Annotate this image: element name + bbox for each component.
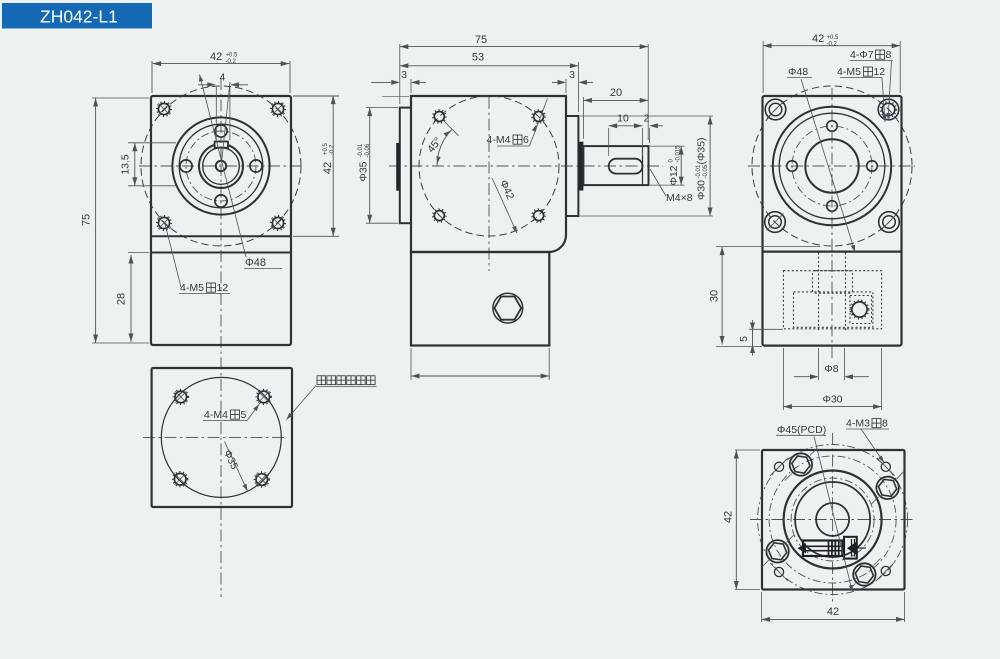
svg-text:Φ45(PCD): Φ45(PCD) xyxy=(777,424,826,436)
svg-text:8: 8 xyxy=(886,49,892,61)
svg-text:4-M4: 4-M4 xyxy=(487,134,511,146)
svg-text:42: 42 xyxy=(322,162,334,174)
svg-text:53: 53 xyxy=(472,52,484,64)
svg-text:42: 42 xyxy=(812,33,824,45)
svg-text:75: 75 xyxy=(475,34,487,46)
svg-text:Φ35: Φ35 xyxy=(358,161,370,181)
svg-text:-0.2: -0.2 xyxy=(226,59,237,65)
svg-text:4-M3: 4-M3 xyxy=(846,418,870,430)
svg-text:-0.01: -0.01 xyxy=(358,143,364,157)
svg-text:30: 30 xyxy=(709,290,721,302)
svg-text:2: 2 xyxy=(644,113,650,125)
svg-text:-0.06: -0.06 xyxy=(365,143,371,157)
svg-text:-0.2: -0.2 xyxy=(827,42,838,48)
svg-text:75: 75 xyxy=(81,214,93,226)
svg-text:Φ12: Φ12 xyxy=(668,165,680,185)
svg-text:Φ30: Φ30 xyxy=(696,180,708,200)
svg-text:3: 3 xyxy=(569,69,575,81)
svg-text:42: 42 xyxy=(210,51,222,63)
svg-text:Φ48: Φ48 xyxy=(245,257,266,269)
svg-text:4-M5: 4-M5 xyxy=(180,282,204,294)
svg-text:5: 5 xyxy=(738,336,750,342)
svg-text:Φ8: Φ8 xyxy=(824,363,838,375)
svg-text:13.5: 13.5 xyxy=(120,154,132,175)
svg-text:28: 28 xyxy=(116,293,128,305)
svg-text:Φ48: Φ48 xyxy=(788,66,808,78)
svg-text:12: 12 xyxy=(217,282,229,294)
svg-text:+0.5: +0.5 xyxy=(226,53,239,59)
svg-text:4-M5: 4-M5 xyxy=(837,66,861,78)
svg-text:4-M4: 4-M4 xyxy=(204,409,228,421)
svg-text:42: 42 xyxy=(827,606,839,618)
svg-text:6: 6 xyxy=(523,134,529,146)
svg-text:-0.05: -0.05 xyxy=(703,164,709,178)
svg-text:M4×8: M4×8 xyxy=(666,192,693,204)
svg-text:4: 4 xyxy=(220,72,226,84)
svg-text:5: 5 xyxy=(241,409,247,421)
svg-text:4-Φ7: 4-Φ7 xyxy=(850,49,874,61)
svg-text:12: 12 xyxy=(874,66,886,78)
svg-text:42: 42 xyxy=(723,511,735,523)
svg-text:+0.5: +0.5 xyxy=(827,35,840,41)
svg-text:20: 20 xyxy=(610,87,622,99)
svg-text:-0.015: -0.015 xyxy=(676,145,682,163)
svg-text:-0.01: -0.01 xyxy=(696,164,702,178)
svg-text:10: 10 xyxy=(617,113,629,125)
svg-text:+0.5: +0.5 xyxy=(323,142,329,155)
svg-text:3: 3 xyxy=(401,69,407,81)
svg-text:-0.2: -0.2 xyxy=(330,144,336,155)
svg-text:(Φ35): (Φ35) xyxy=(696,137,708,164)
svg-text:Φ30: Φ30 xyxy=(822,394,842,406)
svg-text:8: 8 xyxy=(882,418,888,430)
svg-text:ZH042-L1: ZH042-L1 xyxy=(40,7,118,27)
